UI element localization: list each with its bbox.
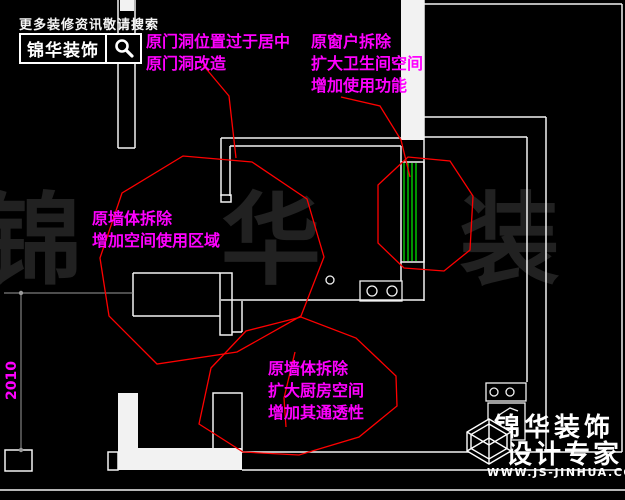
annotation-door: 原门洞位置过于居中 原门洞改造 xyxy=(146,31,290,75)
annotation-bathroom: 原窗户拆除 扩大卫生间空间 增加使用功能 xyxy=(311,31,423,97)
header-tagline: 更多装修资讯敬请搜索 xyxy=(19,14,159,33)
door-knob-circle xyxy=(326,276,334,284)
search-box: 锦华装饰 xyxy=(19,33,142,64)
window-glass-lines xyxy=(404,163,416,261)
dimension-lines: 2010 xyxy=(4,291,133,452)
search-icon xyxy=(107,35,140,62)
annotation-wall: 原墙体拆除 增加空间使用区域 xyxy=(92,208,220,252)
revision-cloud-window xyxy=(378,157,473,271)
revision-cloud-left-wall xyxy=(100,156,324,364)
cube-logo-icon xyxy=(460,410,520,472)
stove xyxy=(360,281,402,301)
dimension-value: 2010 xyxy=(4,361,20,400)
leader-door xyxy=(203,65,236,158)
cad-floorplan-screenshot: 锦 华 装 饰 xyxy=(0,0,625,500)
brand-logo-text: 锦华装饰 xyxy=(21,35,105,62)
annotation-kitchen: 原墙体拆除 扩大厨房空间 增加其通透性 xyxy=(268,358,364,424)
window xyxy=(401,162,424,262)
footer-subtitle-text: 设计专家 xyxy=(506,442,622,468)
